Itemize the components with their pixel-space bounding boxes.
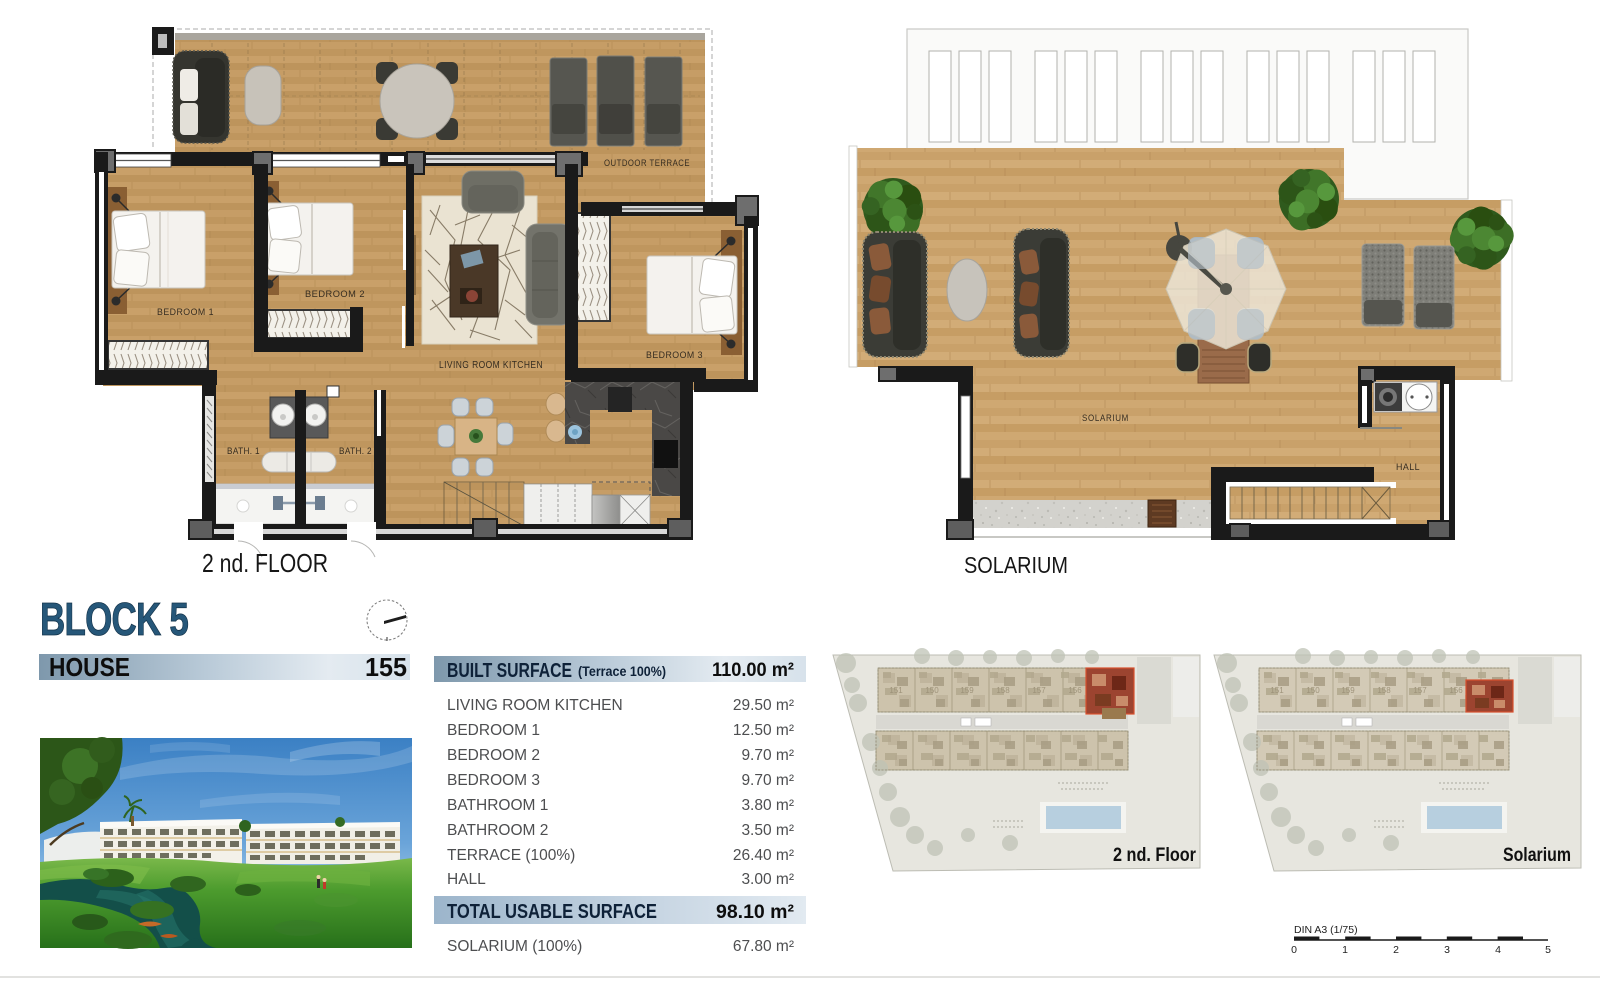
svg-text:1: 1 bbox=[1342, 944, 1348, 956]
svg-text:150: 150 bbox=[1306, 686, 1320, 695]
svg-text:3: 3 bbox=[1444, 944, 1450, 956]
svg-text:9.70 m²: 9.70 m² bbox=[741, 747, 794, 764]
svg-text:159: 159 bbox=[1341, 686, 1355, 695]
svg-text:BEDROOM 3: BEDROOM 3 bbox=[646, 350, 703, 361]
svg-text:BATH. 2: BATH. 2 bbox=[339, 446, 372, 456]
svg-text:DIN A3 (1/75): DIN A3 (1/75) bbox=[1294, 924, 1358, 936]
svg-text:HALL: HALL bbox=[1396, 462, 1420, 473]
svg-text:BLOCK 5: BLOCK 5 bbox=[40, 593, 188, 645]
svg-text:Solarium: Solarium bbox=[1503, 845, 1571, 866]
svg-text:TOTAL USABLE SURFACE: TOTAL USABLE SURFACE bbox=[447, 901, 657, 923]
svg-text:BEDROOM 2: BEDROOM 2 bbox=[447, 747, 540, 764]
svg-text:159: 159 bbox=[960, 686, 974, 695]
svg-text:3.50 m²: 3.50 m² bbox=[741, 822, 794, 839]
svg-text:BATH. 1: BATH. 1 bbox=[227, 446, 260, 456]
svg-text:OUTDOOR TERRACE: OUTDOOR TERRACE bbox=[604, 158, 690, 169]
svg-text:(Terrace 100%): (Terrace 100%) bbox=[578, 664, 666, 679]
svg-text:156: 156 bbox=[1449, 686, 1463, 695]
svg-text:26.40 m²: 26.40 m² bbox=[733, 847, 794, 864]
svg-text:5: 5 bbox=[1545, 944, 1551, 956]
svg-text:HOUSE: HOUSE bbox=[49, 652, 130, 682]
svg-text:2: 2 bbox=[1393, 944, 1399, 956]
svg-text:158: 158 bbox=[996, 686, 1010, 695]
svg-text:98.10 m²: 98.10 m² bbox=[716, 902, 794, 923]
svg-text:4: 4 bbox=[1495, 944, 1501, 956]
svg-text:29.50 m²: 29.50 m² bbox=[733, 697, 794, 714]
svg-text:SOLARIUM (100%): SOLARIUM (100%) bbox=[447, 938, 582, 955]
svg-text:0: 0 bbox=[1291, 944, 1297, 956]
svg-text:SOLARIUM: SOLARIUM bbox=[1082, 413, 1129, 424]
svg-text:HALL: HALL bbox=[447, 871, 486, 888]
svg-text:2 nd. FLOOR: 2 nd. FLOOR bbox=[202, 548, 328, 578]
svg-text:BEDROOM 1: BEDROOM 1 bbox=[447, 722, 540, 739]
svg-text:BEDROOM 2: BEDROOM 2 bbox=[305, 289, 365, 300]
svg-text:TERRACE (100%): TERRACE (100%) bbox=[447, 847, 575, 864]
svg-text:BATHROOM 1: BATHROOM 1 bbox=[447, 797, 548, 814]
svg-text:158: 158 bbox=[1377, 686, 1391, 695]
svg-text:150: 150 bbox=[925, 686, 939, 695]
svg-text:LIVING ROOM KITCHEN: LIVING ROOM KITCHEN bbox=[447, 697, 623, 714]
svg-text:156: 156 bbox=[1068, 686, 1082, 695]
svg-text:BEDROOM 1: BEDROOM 1 bbox=[157, 307, 214, 318]
svg-text:151: 151 bbox=[1270, 686, 1284, 695]
svg-text:67.80 m²: 67.80 m² bbox=[733, 938, 794, 955]
svg-text:BUILT SURFACE: BUILT SURFACE bbox=[447, 660, 572, 682]
svg-text:3.00 m²: 3.00 m² bbox=[741, 871, 794, 888]
svg-text:12.50 m²: 12.50 m² bbox=[733, 722, 794, 739]
svg-text:110.00 m²: 110.00 m² bbox=[712, 660, 794, 681]
svg-text:151: 151 bbox=[889, 686, 903, 695]
svg-text:9.70 m²: 9.70 m² bbox=[741, 772, 794, 789]
svg-text:LIVING ROOM KITCHEN: LIVING ROOM KITCHEN bbox=[439, 360, 543, 371]
svg-text:BEDROOM 3: BEDROOM 3 bbox=[447, 772, 540, 789]
svg-text:2 nd. Floor: 2 nd. Floor bbox=[1113, 845, 1197, 866]
svg-text:3.80 m²: 3.80 m² bbox=[741, 797, 794, 814]
svg-text:157: 157 bbox=[1413, 686, 1427, 695]
svg-text:BATHROOM 2: BATHROOM 2 bbox=[447, 822, 548, 839]
svg-text:155: 155 bbox=[365, 652, 407, 682]
svg-text:157: 157 bbox=[1032, 686, 1046, 695]
svg-text:SOLARIUM: SOLARIUM bbox=[964, 552, 1068, 578]
